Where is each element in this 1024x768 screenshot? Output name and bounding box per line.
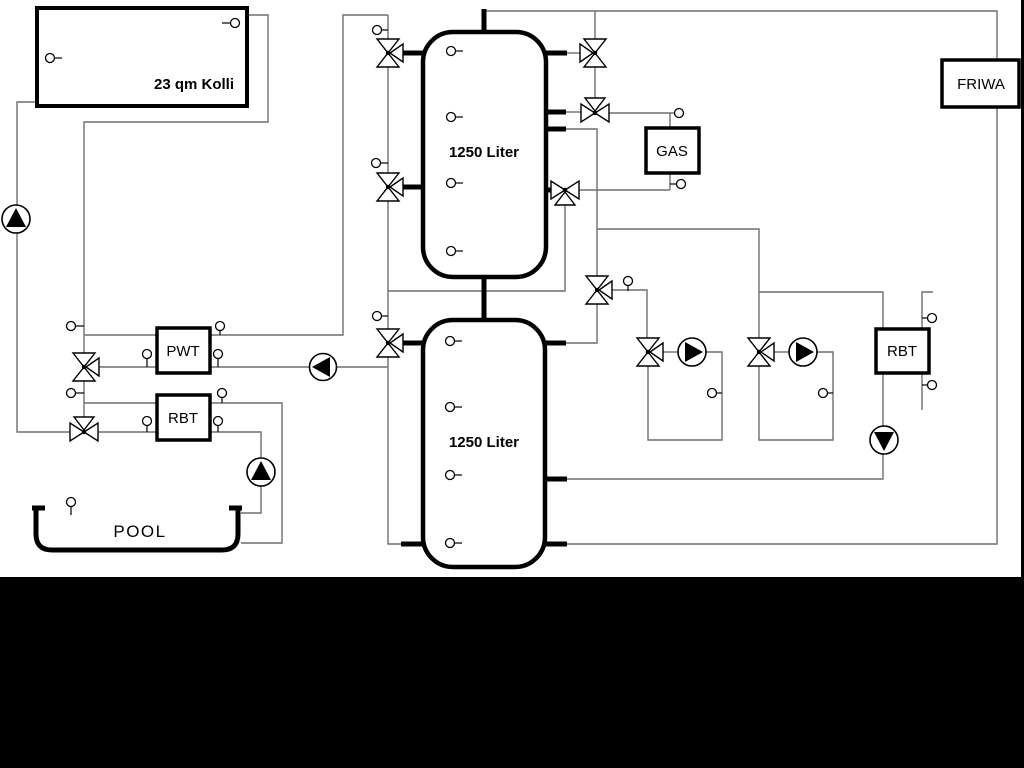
temp-sensor-icon [675, 109, 684, 118]
valve-tank1-top-left [377, 39, 403, 67]
rbt-left-label: RBT [168, 410, 198, 427]
pump-circuit-1-icon [678, 338, 706, 366]
hydraulic-schematic: 23 qm Kolli 1250 Liter 1250 Liter GAS FR… [0, 0, 1024, 768]
temp-sensor-icon [216, 322, 225, 336]
valve-pwt-primary [73, 353, 99, 381]
valve-circuit-1 [637, 338, 663, 366]
pwt-label: PWT [166, 343, 199, 360]
valve-tank1-mid-left [377, 173, 403, 201]
temp-sensor-icon [214, 350, 223, 368]
temp-sensor-icon [143, 350, 152, 368]
temp-sensor-icon [218, 389, 227, 404]
tank1-label: 1250 Liter [449, 144, 519, 161]
valve-tank2-top-left [377, 329, 403, 357]
pump-collector-icon [2, 205, 30, 233]
temp-sensor-icon [67, 389, 85, 398]
temp-sensor-icon [708, 389, 723, 398]
valve-pool-circuit [70, 417, 98, 441]
temp-sensor-icon [373, 26, 389, 35]
temp-sensor-icon [373, 312, 389, 321]
temp-sensor-icon [922, 314, 937, 323]
rbt-right-label: RBT [887, 343, 917, 360]
valve-distribution [586, 276, 612, 304]
temp-sensor-icon [819, 389, 834, 398]
pool-label: POOL [113, 522, 166, 541]
valve-gas-return [551, 181, 579, 205]
pump-pwt-icon [310, 354, 337, 381]
gas-label: GAS [656, 143, 688, 160]
temp-sensor-icon [67, 322, 85, 331]
temp-sensor-icon [67, 498, 76, 516]
temp-sensor-icon [624, 277, 633, 292]
valve-gas-flow [581, 98, 609, 122]
pump-pool-icon [247, 458, 275, 486]
bottom-black-bar [0, 577, 1024, 768]
friwa-label: FRIWA [957, 76, 1005, 93]
pump-circuit-2-icon [789, 338, 817, 366]
temp-sensor-icon [372, 159, 389, 168]
collector-label: 23 qm Kolli [154, 76, 234, 93]
tank2-label: 1250 Liter [449, 434, 519, 451]
temp-sensor-icon [670, 180, 686, 189]
temp-sensor-icon [922, 381, 937, 390]
valve-circuit-2 [748, 338, 774, 366]
temp-sensor-icon [214, 417, 223, 433]
temp-sensor-icon [143, 417, 152, 433]
pump-rbt-right-icon [870, 426, 898, 454]
valve-tank1-top-right [580, 39, 606, 67]
